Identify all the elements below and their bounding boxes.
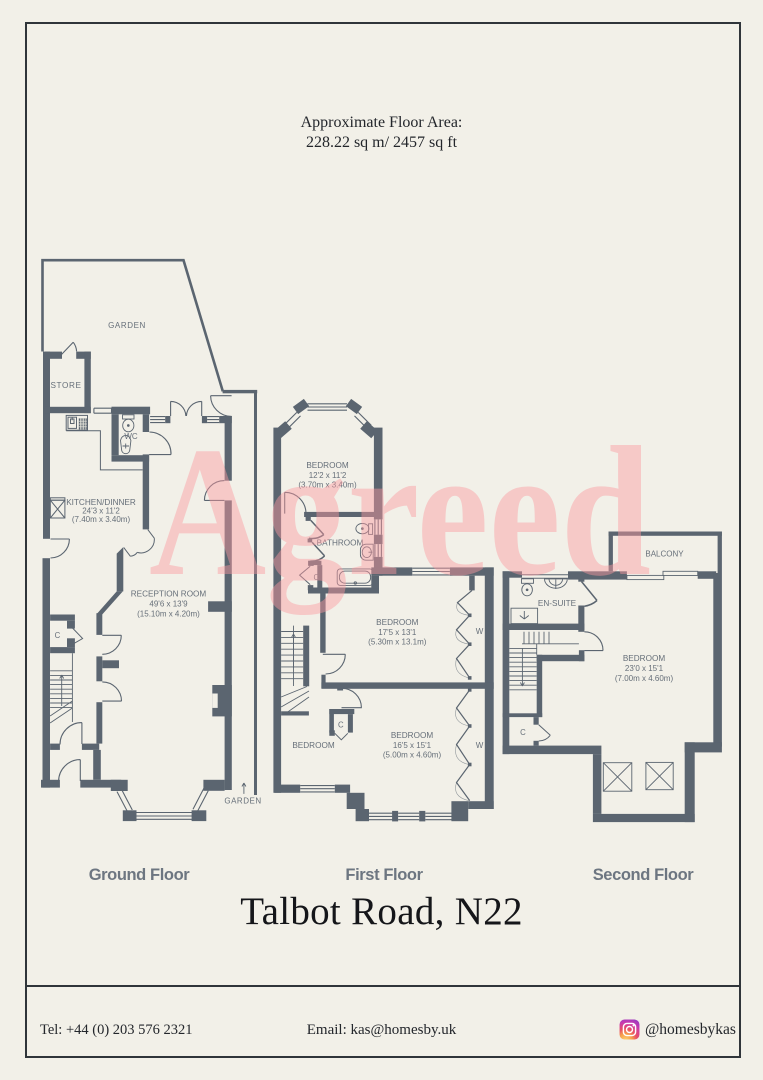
svg-text:Agreed: Agreed	[149, 409, 651, 615]
